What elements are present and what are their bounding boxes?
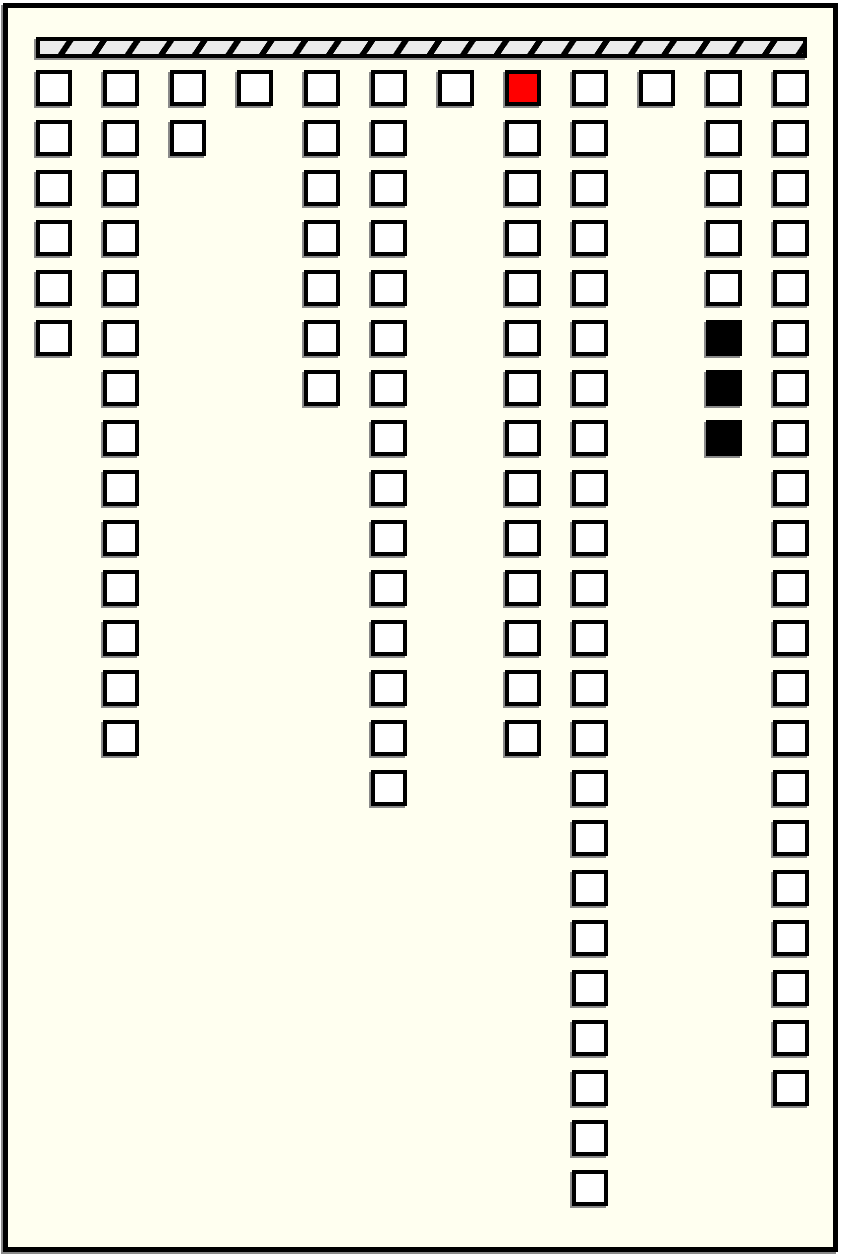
cell-col12-row16[interactable] xyxy=(773,820,809,856)
cell-col11-row1[interactable] xyxy=(706,70,742,106)
cell-col2-row8[interactable] xyxy=(103,420,139,456)
cell-col12-row11[interactable] xyxy=(773,570,809,606)
cell-col9-row5[interactable] xyxy=(572,270,608,306)
cell-col8-row6[interactable] xyxy=(505,320,541,356)
cell-col8-row7[interactable] xyxy=(505,370,541,406)
cell-col9-row4[interactable] xyxy=(572,220,608,256)
cell-col5-row4[interactable] xyxy=(304,220,340,256)
cell-col11-row4[interactable] xyxy=(706,220,742,256)
cell-col7-row1[interactable] xyxy=(438,70,474,106)
cell-col8-row14[interactable] xyxy=(505,720,541,756)
cell-col9-row12[interactable] xyxy=(572,620,608,656)
cell-col8-row13[interactable] xyxy=(505,670,541,706)
cell-col8-row5[interactable] xyxy=(505,270,541,306)
cell-col9-row21[interactable] xyxy=(572,1070,608,1106)
cell-col11-row2[interactable] xyxy=(706,120,742,156)
cell-col1-row6[interactable] xyxy=(36,320,72,356)
cell-col6-row12[interactable] xyxy=(371,620,407,656)
cell-col9-row23[interactable] xyxy=(572,1170,608,1206)
cell-col12-row15[interactable] xyxy=(773,770,809,806)
cell-col12-row21[interactable] xyxy=(773,1070,809,1106)
cell-col6-row15[interactable] xyxy=(371,770,407,806)
cell-col6-row7[interactable] xyxy=(371,370,407,406)
cell-col6-row14[interactable] xyxy=(371,720,407,756)
cell-col1-row3[interactable] xyxy=(36,170,72,206)
cell-col2-row5[interactable] xyxy=(103,270,139,306)
cell-col1-row4[interactable] xyxy=(36,220,72,256)
cell-col9-row8[interactable] xyxy=(572,420,608,456)
cell-col9-row16[interactable] xyxy=(572,820,608,856)
cell-col9-row7[interactable] xyxy=(572,370,608,406)
cell-col12-row6[interactable] xyxy=(773,320,809,356)
cell-col2-row3[interactable] xyxy=(103,170,139,206)
cell-col6-row4[interactable] xyxy=(371,220,407,256)
cell-col12-row12[interactable] xyxy=(773,620,809,656)
cell-col8-row9[interactable] xyxy=(505,470,541,506)
cell-col9-row11[interactable] xyxy=(572,570,608,606)
cell-col3-row1[interactable] xyxy=(170,70,206,106)
cell-col8-row12[interactable] xyxy=(505,620,541,656)
cell-col11-row6-black[interactable] xyxy=(706,320,742,356)
cell-col9-row10[interactable] xyxy=(572,520,608,556)
cell-col5-row5[interactable] xyxy=(304,270,340,306)
cell-col2-row9[interactable] xyxy=(103,470,139,506)
cell-col2-row12[interactable] xyxy=(103,620,139,656)
cell-col11-row7-black[interactable] xyxy=(706,370,742,406)
cell-col8-row11[interactable] xyxy=(505,570,541,606)
cell-col1-row2[interactable] xyxy=(36,120,72,156)
cell-col5-row7[interactable] xyxy=(304,370,340,406)
cell-col9-row15[interactable] xyxy=(572,770,608,806)
cell-col6-row5[interactable] xyxy=(371,270,407,306)
cell-col12-row4[interactable] xyxy=(773,220,809,256)
cell-col9-row20[interactable] xyxy=(572,1020,608,1056)
cell-col6-row3[interactable] xyxy=(371,170,407,206)
cell-col6-row11[interactable] xyxy=(371,570,407,606)
cell-col12-row1[interactable] xyxy=(773,70,809,106)
cell-col9-row18[interactable] xyxy=(572,920,608,956)
cell-col6-row13[interactable] xyxy=(371,670,407,706)
cell-col9-row22[interactable] xyxy=(572,1120,608,1156)
cell-col2-row10[interactable] xyxy=(103,520,139,556)
cell-col11-row8-black[interactable] xyxy=(706,420,742,456)
hatched-top-bar xyxy=(36,37,807,58)
cell-col6-row9[interactable] xyxy=(371,470,407,506)
cell-col9-row14[interactable] xyxy=(572,720,608,756)
cell-col5-row1[interactable] xyxy=(304,70,340,106)
cell-col12-row19[interactable] xyxy=(773,970,809,1006)
cell-col6-row10[interactable] xyxy=(371,520,407,556)
cell-col5-row3[interactable] xyxy=(304,170,340,206)
cell-col2-row2[interactable] xyxy=(103,120,139,156)
cell-col8-row4[interactable] xyxy=(505,220,541,256)
cell-col12-row17[interactable] xyxy=(773,870,809,906)
cell-col5-row6[interactable] xyxy=(304,320,340,356)
cell-col12-row3[interactable] xyxy=(773,170,809,206)
cell-col12-row5[interactable] xyxy=(773,270,809,306)
cell-col1-row5[interactable] xyxy=(36,270,72,306)
cell-col8-row8[interactable] xyxy=(505,420,541,456)
cell-col10-row1[interactable] xyxy=(639,70,675,106)
cell-col9-row6[interactable] xyxy=(572,320,608,356)
cell-col12-row9[interactable] xyxy=(773,470,809,506)
cell-col2-row13[interactable] xyxy=(103,670,139,706)
cell-col12-row20[interactable] xyxy=(773,1020,809,1056)
cell-col2-row4[interactable] xyxy=(103,220,139,256)
cell-col12-row14[interactable] xyxy=(773,720,809,756)
cell-col6-row6[interactable] xyxy=(371,320,407,356)
cell-col8-row2[interactable] xyxy=(505,120,541,156)
cell-col11-row5[interactable] xyxy=(706,270,742,306)
cell-col6-row1[interactable] xyxy=(371,70,407,106)
cell-col2-row7[interactable] xyxy=(103,370,139,406)
cell-col1-row1[interactable] xyxy=(36,70,72,106)
cell-col2-row1[interactable] xyxy=(103,70,139,106)
cell-col9-row3[interactable] xyxy=(572,170,608,206)
cell-col12-row13[interactable] xyxy=(773,670,809,706)
cell-col6-row2[interactable] xyxy=(371,120,407,156)
cell-col12-row8[interactable] xyxy=(773,420,809,456)
cell-col5-row2[interactable] xyxy=(304,120,340,156)
cell-col2-row14[interactable] xyxy=(103,720,139,756)
cell-col12-row10[interactable] xyxy=(773,520,809,556)
cell-col2-row11[interactable] xyxy=(103,570,139,606)
cell-col12-row7[interactable] xyxy=(773,370,809,406)
cell-col4-row1[interactable] xyxy=(237,70,273,106)
cell-col8-row1-red[interactable] xyxy=(505,70,541,106)
cell-col9-row19[interactable] xyxy=(572,970,608,1006)
cell-col8-row3[interactable] xyxy=(505,170,541,206)
game-stage xyxy=(0,0,842,1258)
cell-col11-row3[interactable] xyxy=(706,170,742,206)
cell-col12-row18[interactable] xyxy=(773,920,809,956)
cell-col9-row17[interactable] xyxy=(572,870,608,906)
cell-col3-row2[interactable] xyxy=(170,120,206,156)
cell-col8-row10[interactable] xyxy=(505,520,541,556)
cell-col2-row6[interactable] xyxy=(103,320,139,356)
cell-col12-row2[interactable] xyxy=(773,120,809,156)
cell-col9-row9[interactable] xyxy=(572,470,608,506)
cell-col9-row13[interactable] xyxy=(572,670,608,706)
cell-col9-row1[interactable] xyxy=(572,70,608,106)
cell-col6-row8[interactable] xyxy=(371,420,407,456)
cell-col9-row2[interactable] xyxy=(572,120,608,156)
